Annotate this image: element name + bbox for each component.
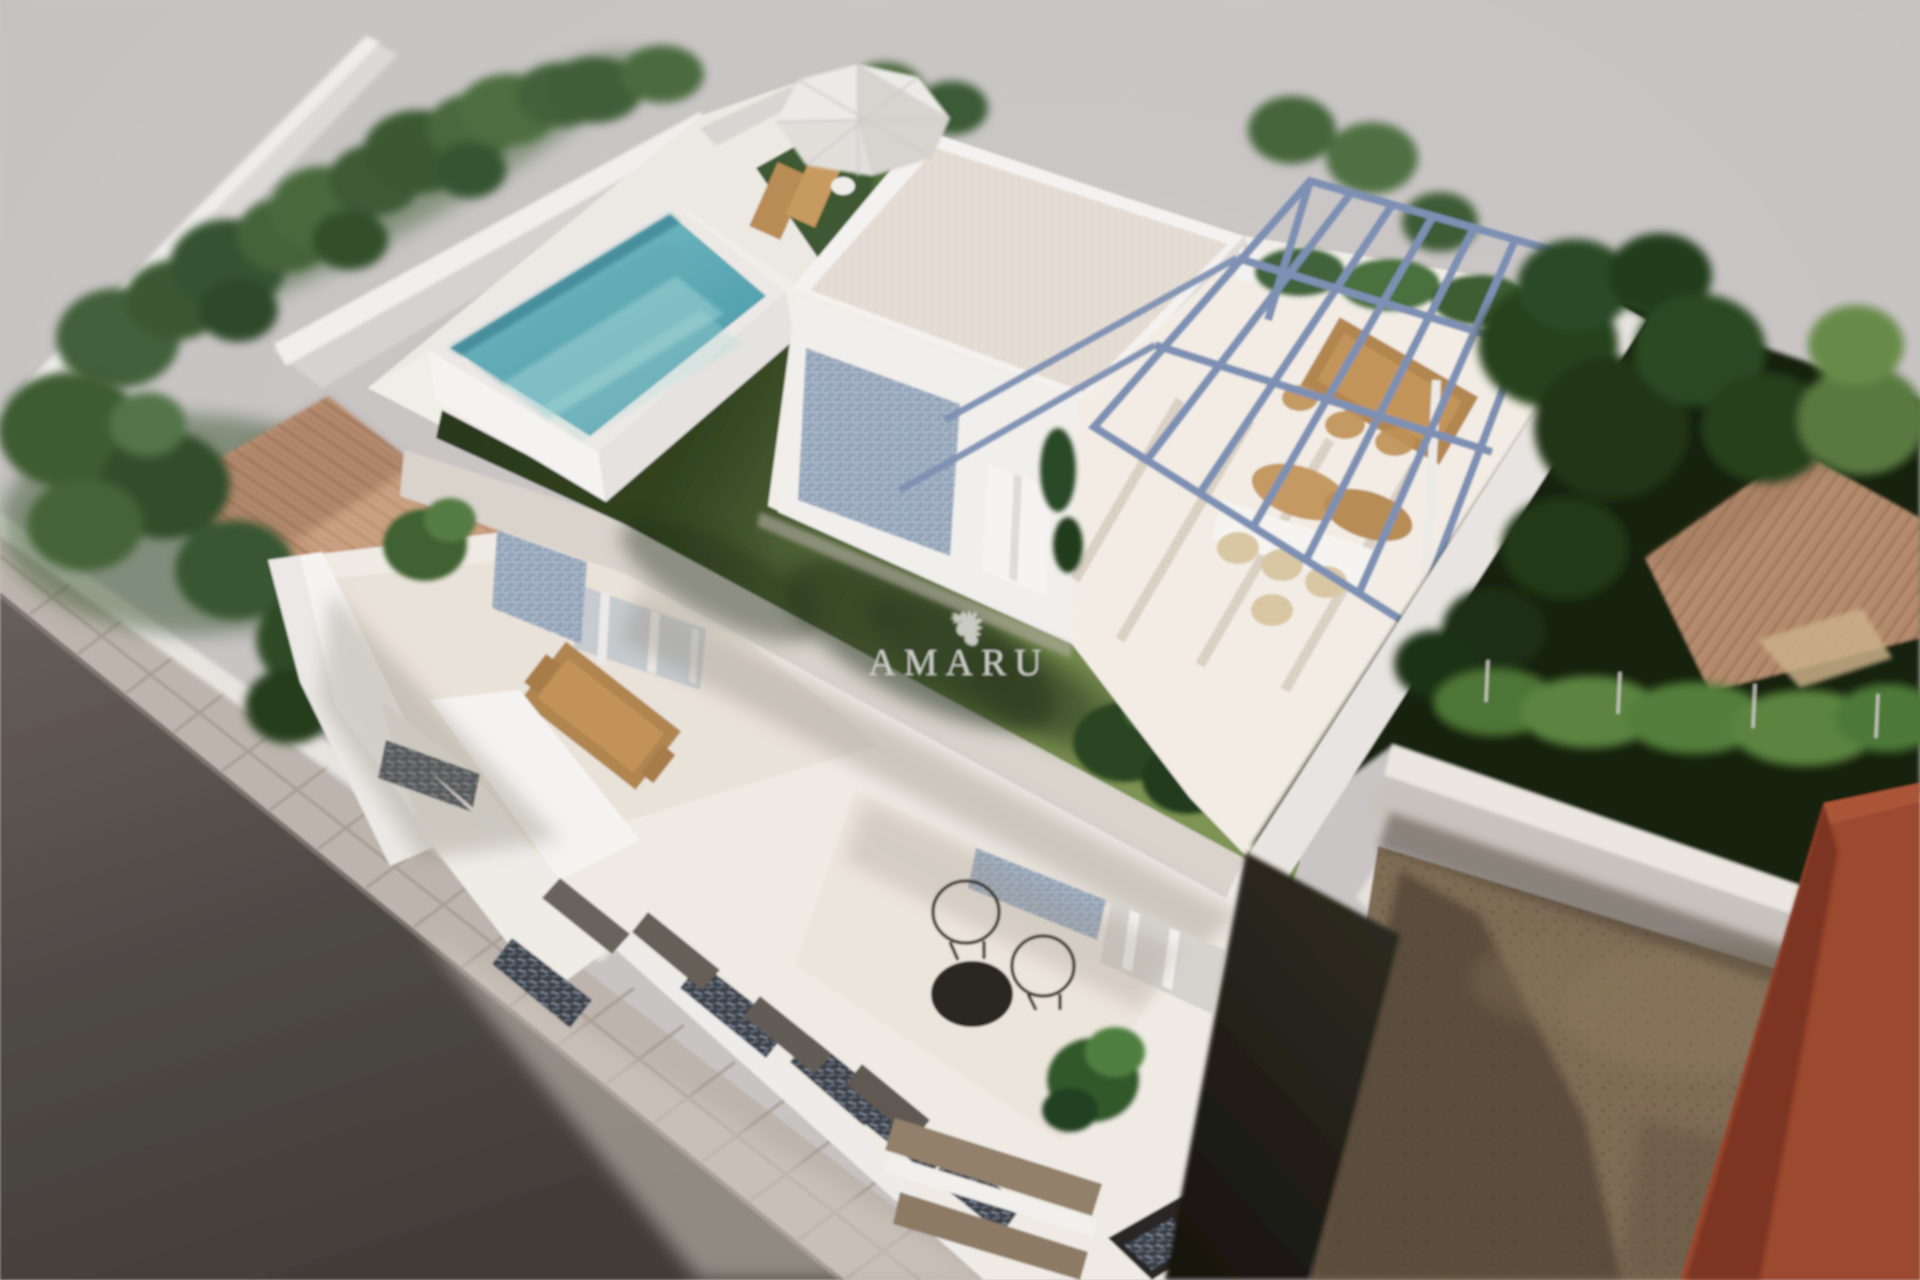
svg-text:AMARU: AMARU xyxy=(868,642,1049,684)
